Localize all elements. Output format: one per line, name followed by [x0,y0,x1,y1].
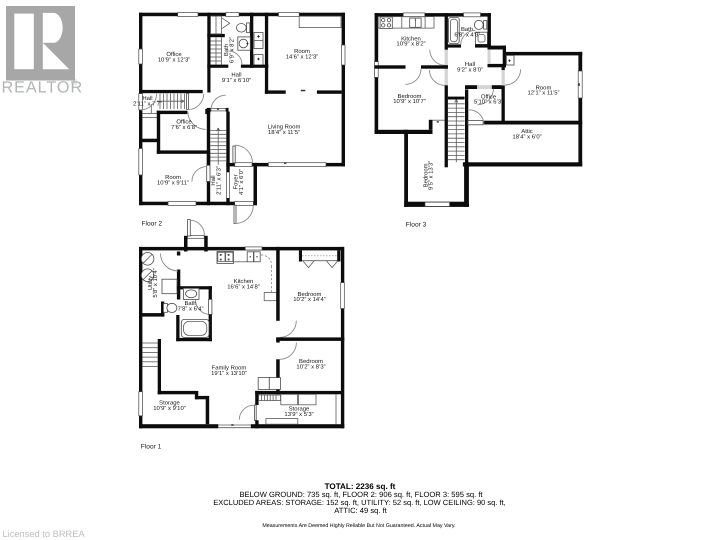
svg-text:10’2” x 14’4”: 10’2” x 14’4” [293,296,325,303]
svg-text:10’9” x 9’10”: 10’9” x 9’10” [153,405,185,412]
svg-text:2’11” x 7’7”: 2’11” x 7’7” [133,100,162,107]
svg-text:10’9” x 10’7”: 10’9” x 10’7” [393,98,425,105]
svg-text:10’9” x 9’11”: 10’9” x 9’11” [157,179,189,186]
svg-text:Floor 1: Floor 1 [141,443,162,450]
svg-text:5’10” x 6’3”: 5’10” x 6’3” [474,99,503,106]
svg-text:10’2” x 8’3”: 10’2” x 8’3” [296,363,325,370]
svg-text:Floor 3: Floor 3 [406,222,427,229]
svg-text:ATTIC: 49 sq. ft: ATTIC: 49 sq. ft [334,506,387,515]
svg-text:2’11” x 6’3”: 2’11” x 6’3” [216,166,223,195]
svg-text:18’4” x 11’5”: 18’4” x 11’5” [268,129,300,136]
svg-text:14’6” x 12’3”: 14’6” x 12’3” [286,53,318,60]
svg-text:9’1” x 6’10”: 9’1” x 6’10” [222,77,251,84]
svg-text:10’9” x 8’2”: 10’9” x 8’2” [396,41,425,48]
svg-text:18’4” x 6’0”: 18’4” x 6’0” [512,133,541,140]
svg-text:Measurements Are Deemed Highly: Measurements Are Deemed Highly Reliable … [262,523,455,529]
svg-text:Floor 2: Floor 2 [142,221,163,228]
svg-text:7’6” x 6’8”: 7’6” x 6’8” [171,124,197,131]
svg-text:16’6” x 14’8”: 16’6” x 14’8” [227,283,259,290]
svg-text:19’1” x 13’10”: 19’1” x 13’10” [211,370,247,377]
svg-text:7’8” x 6’4”: 7’8” x 6’4” [178,306,204,313]
svg-text:10’9” x 12’3”: 10’9” x 12’3” [158,56,190,63]
svg-text:9’5” x 13’3”: 9’5” x 13’3” [428,161,435,190]
svg-text:Licensed to BRREA: Licensed to BRREA [3,529,86,539]
svg-text:5’8” x 10’4”: 5’8” x 10’4” [152,268,159,297]
svg-text:13’9” x 5’3”: 13’9” x 5’3” [284,411,313,418]
svg-text:6’9” x 8’2”: 6’9” x 8’2” [229,37,236,63]
svg-text:9’2” x 8’0”: 9’2” x 8’0” [457,66,483,73]
svg-text:®: ® [71,77,78,87]
svg-text:12’1” x 11’5”: 12’1” x 11’5” [528,90,560,97]
svg-text:4’1” x 6’0”: 4’1” x 6’0” [238,169,245,195]
